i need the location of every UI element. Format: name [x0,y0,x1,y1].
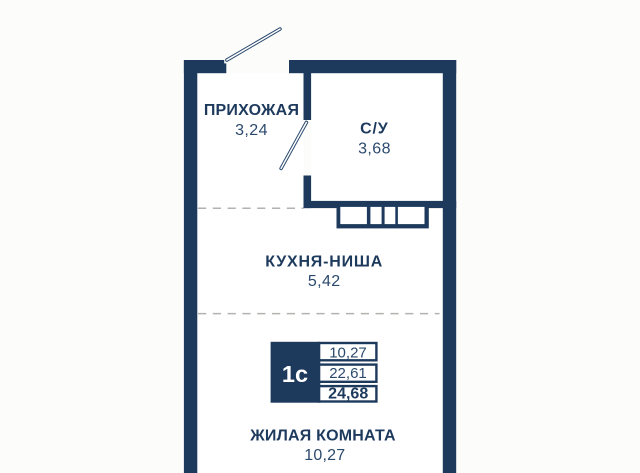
svg-text:3,24: 3,24 [235,122,268,139]
svg-text:10,27: 10,27 [304,447,345,464]
svg-text:10,27: 10,27 [329,345,367,362]
svg-text:ПРИХОЖАЯ: ПРИХОЖАЯ [204,102,299,119]
svg-text:ЖИЛАЯ КОМНАТА: ЖИЛАЯ КОМНАТА [249,428,396,445]
svg-text:3,68: 3,68 [358,140,391,157]
svg-text:1с: 1с [282,361,308,387]
svg-text:КУХНЯ-НИША: КУХНЯ-НИША [265,254,383,271]
svg-text:24,68: 24,68 [328,386,368,403]
svg-text:5,42: 5,42 [308,273,341,290]
svg-text:С/У: С/У [360,121,389,138]
svg-text:22,61: 22,61 [329,365,367,382]
